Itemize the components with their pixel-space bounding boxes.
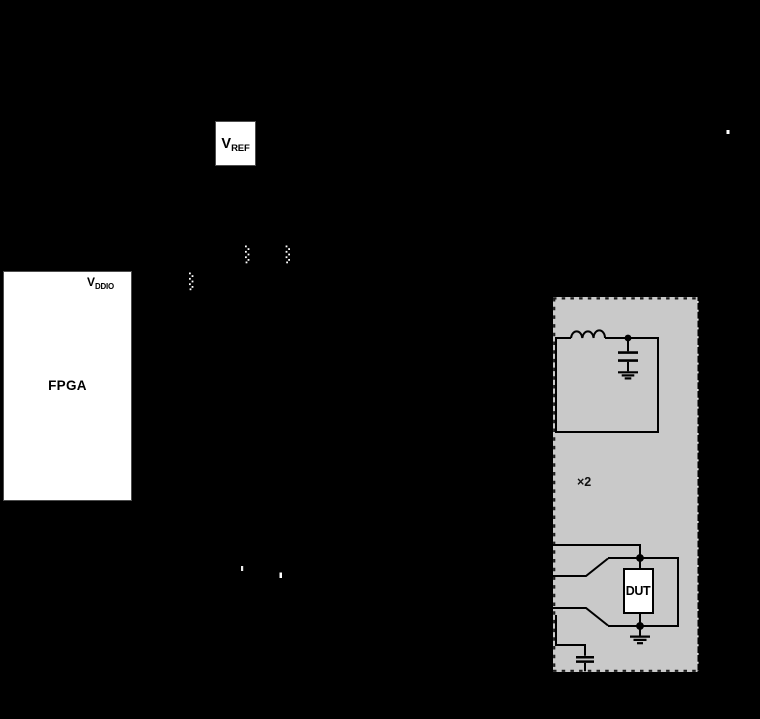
- junction-dot: [625, 335, 632, 342]
- multiplier-label: ×2: [577, 475, 591, 489]
- vref-label-sub: REF: [231, 143, 250, 154]
- white-dot-artifact: [280, 573, 283, 579]
- dut-box: DUT: [623, 568, 654, 614]
- dut-label: DUT: [626, 584, 651, 598]
- resistor-zigzag-artifact: [245, 246, 249, 264]
- fpga-box: VDDIO FPGA: [3, 271, 132, 501]
- vref-box: VREF: [215, 121, 256, 166]
- schematic-canvas: VREF VDDIO FPGA DUT ×2: [0, 0, 760, 719]
- vref-label: VREF: [221, 136, 249, 152]
- fpga-label: FPGA: [4, 378, 131, 393]
- resistor-zigzag-artifact: [286, 246, 290, 264]
- white-dot-artifact: [727, 130, 730, 134]
- vddio-label-main: V: [87, 275, 95, 289]
- resistor-zigzag-artifact: [189, 273, 193, 291]
- white-dot-artifact: [241, 566, 243, 571]
- vddio-label: VDDIO: [87, 275, 114, 289]
- vref-label-main: V: [221, 136, 231, 152]
- vddio-label-sub: DDIO: [95, 282, 114, 291]
